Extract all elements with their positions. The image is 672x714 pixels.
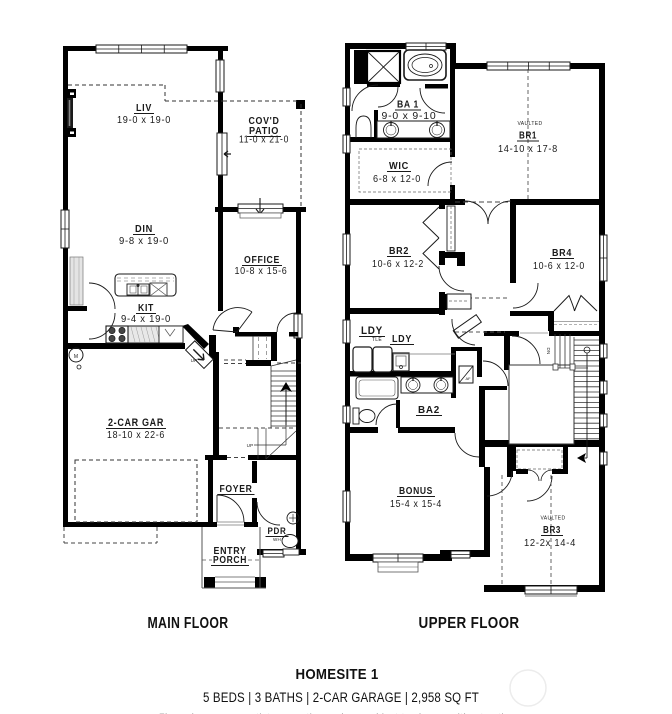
svg-text:5 BEDS | 3 BATHS | 2-CAR GARAG: 5 BEDS | 3 BATHS | 2-CAR GARAGE | 2,958 … <box>203 690 479 705</box>
svg-text:LIV: LIV <box>136 102 152 114</box>
svg-text:HOMESITE 1: HOMESITE 1 <box>296 666 379 683</box>
svg-text:BR4: BR4 <box>552 247 572 259</box>
svg-text:6-8 x 12-0: 6-8 x 12-0 <box>373 173 421 185</box>
svg-text:19-0 x 19-0: 19-0 x 19-0 <box>117 114 171 126</box>
svg-text:LDY: LDY <box>361 325 383 337</box>
svg-text:WH: WH <box>273 537 281 542</box>
svg-text:12-2x 14-4: 12-2x 14-4 <box>524 537 576 549</box>
svg-text:BA2: BA2 <box>418 404 440 416</box>
svg-text:BR1: BR1 <box>519 130 537 142</box>
svg-text:PDR: PDR <box>268 526 287 537</box>
svg-text:9-8 x 19-0: 9-8 x 19-0 <box>119 235 169 247</box>
svg-text:TLE: TLE <box>372 337 382 343</box>
svg-text:MAIN FLOOR: MAIN FLOOR <box>148 615 229 632</box>
svg-text:11-0 x 21-0: 11-0 x 21-0 <box>239 134 289 146</box>
svg-text:FOYER: FOYER <box>220 483 253 495</box>
svg-text:BR2: BR2 <box>389 245 409 257</box>
svg-text:BR3: BR3 <box>543 524 561 536</box>
svg-text:14-10 x 17-8: 14-10 x 17-8 <box>498 143 558 155</box>
svg-text:DN: DN <box>546 347 551 354</box>
svg-text:15-4 x 15-4: 15-4 x 15-4 <box>390 498 442 510</box>
svg-text:VAULTED: VAULTED <box>540 516 565 522</box>
svg-text:LDY: LDY <box>392 333 412 345</box>
svg-text:UPPER FLOOR: UPPER FLOOR <box>419 615 520 632</box>
svg-text:M: M <box>74 354 78 360</box>
svg-text:PORCH: PORCH <box>213 554 247 566</box>
svg-text:9-4 x 19-0: 9-4 x 19-0 <box>121 313 171 325</box>
svg-text:9-0 x 9-10: 9-0 x 9-10 <box>382 110 437 122</box>
svg-text:BA 1: BA 1 <box>397 99 419 111</box>
svg-text:AF: AF <box>465 376 471 381</box>
svg-text:2-CAR GAR: 2-CAR GAR <box>108 417 164 429</box>
svg-text:18-10 x 22-6: 18-10 x 22-6 <box>107 429 165 441</box>
svg-text:BONUS: BONUS <box>399 485 433 497</box>
svg-text:10-6 x 12-0: 10-6 x 12-0 <box>533 260 585 272</box>
svg-text:10-8 x 15-6: 10-8 x 15-6 <box>235 265 288 277</box>
svg-text:UP: UP <box>191 358 198 363</box>
svg-text:10-6 x 12-2: 10-6 x 12-2 <box>372 258 424 270</box>
svg-text:WIC: WIC <box>389 160 409 172</box>
svg-text:UP: UP <box>247 443 254 448</box>
svg-text:DIN: DIN <box>135 223 153 235</box>
svg-text:VAULTED: VAULTED <box>517 121 542 127</box>
